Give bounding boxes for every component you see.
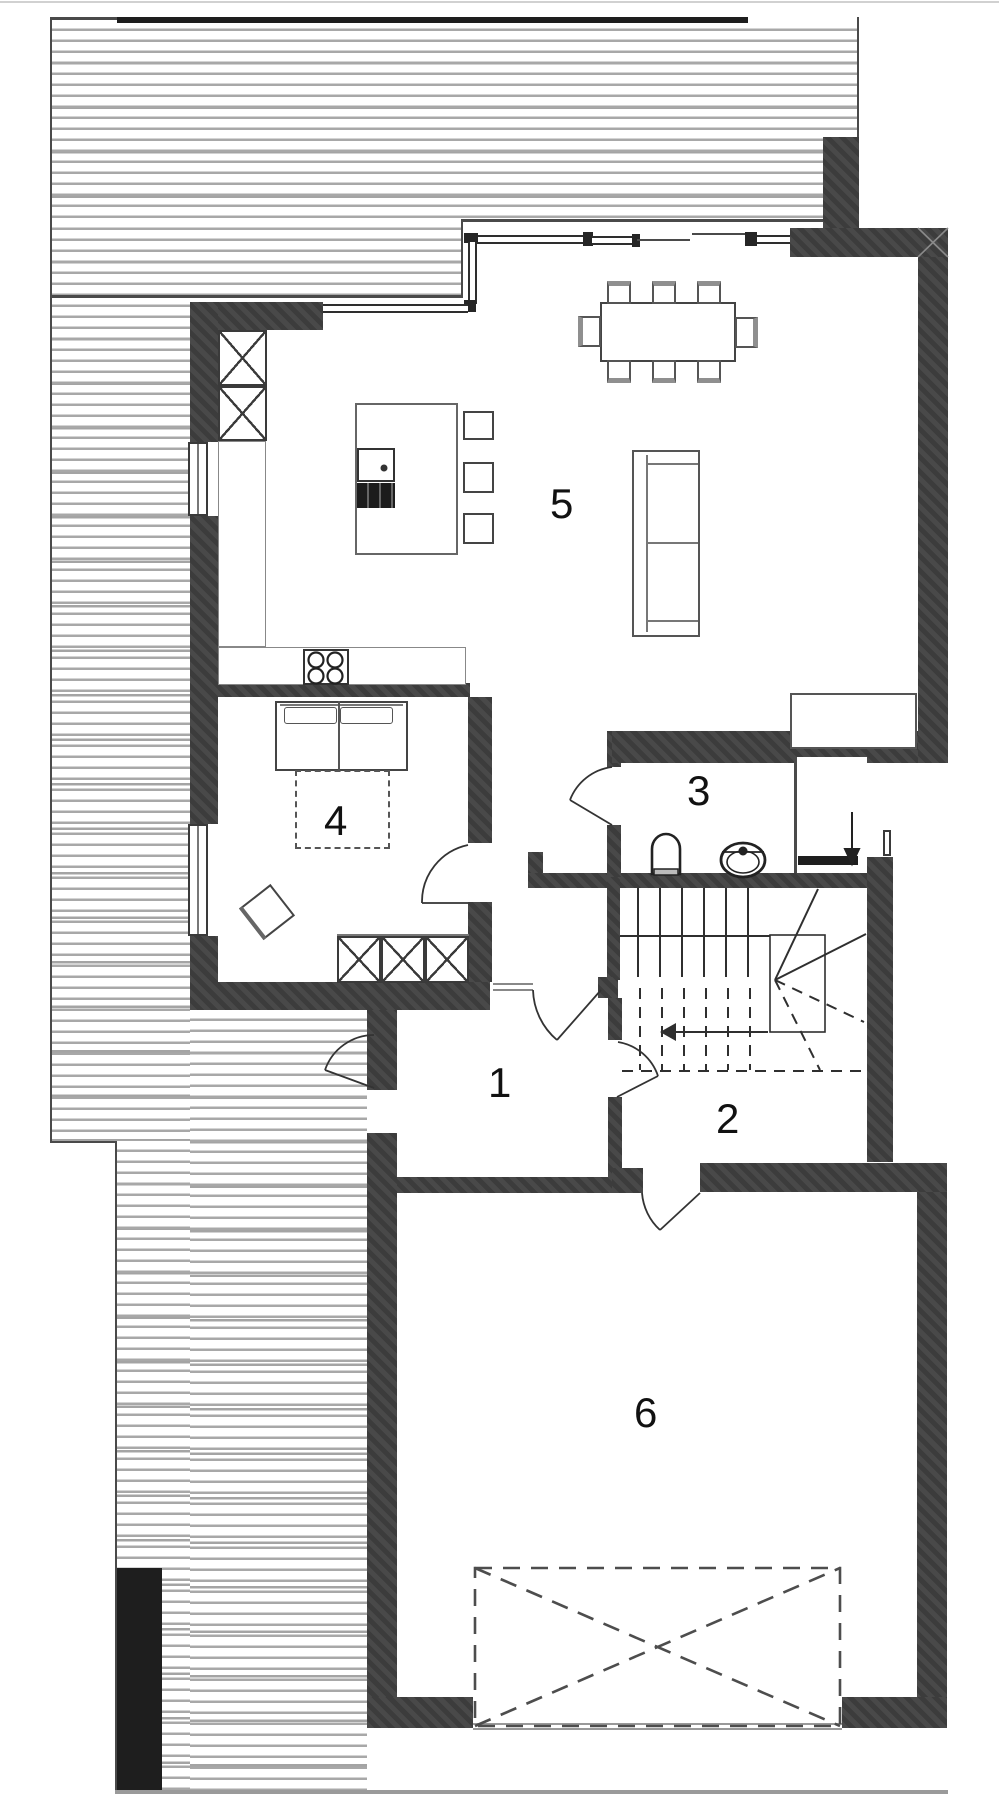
wardrobe [425,936,469,983]
entrance-door-frame [883,830,891,856]
plot-dotted-top-line [0,1,999,3]
dining-chair [652,281,676,304]
wall-south-bedroom [190,982,490,1010]
terrace-hatch-side-path [190,1010,367,1790]
building-face-line [461,219,859,222]
driveway-line [115,1790,948,1794]
staircase-dashed [622,980,864,1071]
terrace-edge-step [50,1141,117,1143]
room-6-label: 6 [634,1392,657,1434]
wardrobe [381,936,425,983]
door-hall [533,990,601,1040]
building-face-line-v [461,219,463,297]
dining-chair [607,281,631,304]
sofa-cushion-divider [646,542,698,544]
terrace-hatch-mid [52,219,461,296]
room-5-label: 5 [550,483,573,525]
room-3-label: 3 [687,770,710,812]
sofa-line-bottom [646,620,698,622]
wardrobe [337,936,381,983]
wall-stair-west-cap [598,977,618,998]
wall-left-2 [190,516,218,824]
kitchen-window-midline [197,444,199,514]
door-bedroom [422,845,468,903]
bar-stool [463,411,494,440]
wall-bath-west-bottom [607,825,621,877]
glazing-kitchen-band [323,304,468,313]
wall-stair-west-3 [608,1097,622,1177]
glazing-slider-line-1 [637,239,690,241]
wall-garage-door-stub [612,1168,643,1193]
staircase [620,888,866,1041]
wall-left-1 [190,302,218,442]
threshold [493,983,533,991]
wall-garage-west [367,1133,397,1727]
garage-gate [475,1568,840,1726]
toilet [652,834,680,875]
bedroom-window-midline [197,826,199,934]
dining-chair [697,360,721,383]
room-4-label: 4 [324,800,347,842]
island-hob [357,483,395,508]
room-1-label: 1 [488,1062,511,1104]
wall-garage-north-left [397,1177,612,1193]
fireplace [790,693,917,749]
terrace-hatch-top [52,20,823,219]
wall-garage-south-right [842,1697,947,1728]
bar-stool [463,513,494,544]
dining-chair [607,360,631,383]
door-stair-hall [617,1042,658,1097]
tall-cabinet [218,386,267,441]
wall-north-right [790,228,948,257]
bed-pillow [340,707,393,724]
wall-bedroom-east-upper [468,697,492,843]
wall-bath-south [528,873,867,888]
glazing-west-band [468,242,477,304]
terrace-edge-top-bar [117,17,748,23]
wall-garage-south-left [367,1697,473,1728]
glazing-post-3 [745,232,757,246]
door-bathroom [570,767,612,825]
pouf-inner-line [239,884,295,940]
wall-east-upper [918,228,948,763]
tall-cabinet [218,330,267,386]
glazing-top-3 [757,235,790,244]
kitchen-counter-left [218,441,266,647]
sofa-line-top [646,463,698,465]
wall-stair-west [607,877,620,980]
wall-room2-south [700,1163,947,1192]
terrace-edge-left [50,17,52,1143]
terrace-door-opening [367,1090,397,1133]
bed-center-divider [338,701,340,771]
dining-chair [652,360,676,383]
terrace-hatch-left [52,296,190,1141]
dining-chair [735,317,758,348]
washbasin [721,843,765,877]
fence-pier [117,1568,162,1790]
glazing-slider-line-2 [692,233,745,235]
wall-garage-east [917,1192,947,1728]
terrace-hatch-top-right [823,20,858,137]
wall-terrace-door-pier [367,1010,397,1090]
room-2-label: 2 [716,1098,739,1140]
wall-bedroom-north [218,683,470,697]
island-sink [357,448,395,482]
glazing-top-1 [468,235,584,244]
dining-chair [578,316,601,347]
wall-stair-west-2 [608,998,622,1040]
wall-east-mid [867,857,893,1162]
cooktop [303,649,349,685]
dining-chair [697,281,721,304]
wall-top-vertical [823,137,859,228]
bar-stool [463,462,494,493]
porch-divider-line [794,757,797,873]
dining-table [600,302,736,362]
garage-gate-threshold [473,1723,842,1730]
door-garage [642,1193,700,1230]
entrance-mat-bar [798,856,858,865]
bed-headboard-line [280,704,403,706]
wall-bedroom-east-lower [468,902,492,982]
bed-pillow [284,707,337,724]
terrace-edge-top-thin [50,17,117,20]
floor-plan: 1 2 3 4 5 6 [0,0,999,1818]
terrace-edge-right-top [857,17,859,137]
building-face-line-b [50,295,463,298]
